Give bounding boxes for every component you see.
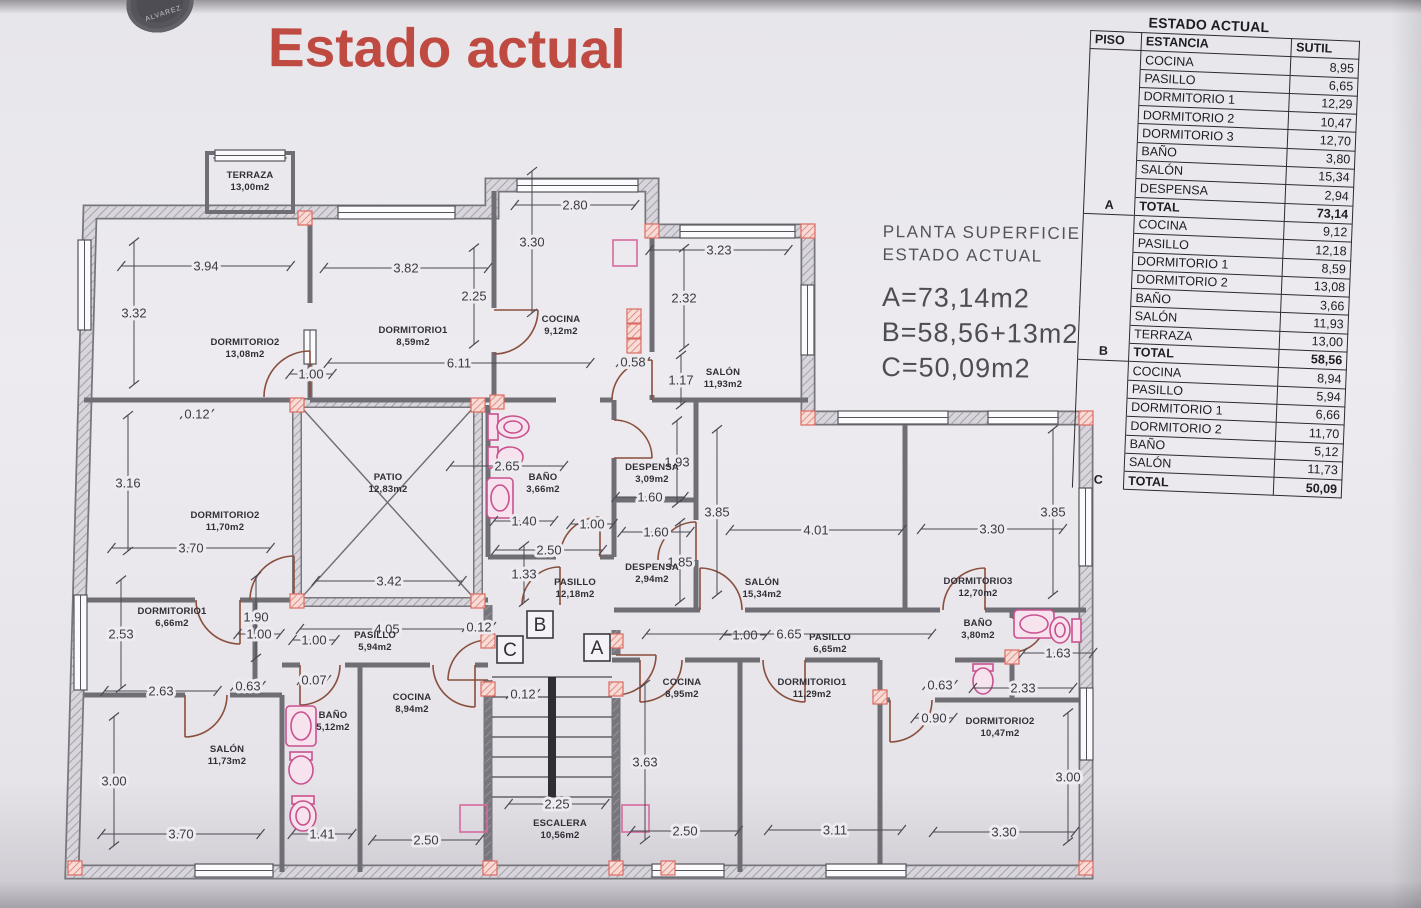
- corner-post: [1079, 861, 1093, 875]
- corner-post: [627, 324, 641, 338]
- area-table-body: COCINA8,95PASILLO6,65DORMITORIO 112,29DO…: [1072, 49, 1358, 499]
- window-symbol: [215, 150, 285, 161]
- dimension: 3.23: [646, 243, 793, 258]
- dimension: 6.65: [642, 627, 936, 642]
- dimension-label: 2.50: [413, 833, 438, 848]
- window-symbol: [988, 411, 1058, 424]
- dimension: 1.00: [567, 517, 618, 532]
- dimension-label: 3.82: [393, 261, 418, 276]
- area-table: ESTADO ACTUAL PISO ESTANCIA SUTIL COCINA…: [1072, 12, 1361, 499]
- dimension-label: 2.65: [494, 459, 519, 474]
- corner-post: [609, 682, 623, 696]
- room-label: DORMITORIO111,29m2: [777, 677, 847, 700]
- dimension: 0.12: [506, 687, 540, 702]
- piso-cell: [1079, 305, 1131, 325]
- dimension-label: 2.33: [1010, 681, 1035, 696]
- dimension-label: 2.32: [671, 291, 696, 306]
- piso-cell: [1075, 396, 1127, 416]
- dimension-label: 3.30: [519, 235, 544, 250]
- dimension: 3.94: [117, 259, 294, 274]
- unit-letter: A: [591, 638, 604, 659]
- window-symbol: [195, 864, 273, 877]
- dimension-label: 2.53: [108, 627, 133, 642]
- dimension-label: 3.00: [101, 774, 126, 789]
- room-label: DESPENSA2,94m2: [625, 562, 679, 585]
- dimension-label: 0.12: [466, 620, 491, 635]
- dimension-label: 3.30: [991, 825, 1016, 840]
- dimension-label: 6.11: [447, 356, 471, 371]
- dimension: 2.50: [368, 833, 484, 848]
- piso-cell: [1077, 360, 1129, 380]
- dimension: 3.32: [121, 238, 146, 389]
- dimension: 0.63: [230, 679, 265, 694]
- dimension-label: 0.12: [184, 407, 209, 422]
- area-a-text: A=73,14m2: [882, 280, 1080, 317]
- dimension-label: 0.07: [301, 673, 326, 688]
- piso-cell: [1078, 323, 1130, 343]
- dimension: 2.53: [108, 576, 133, 693]
- corner-post: [471, 398, 485, 412]
- unit-letter: C: [503, 640, 517, 661]
- area-b-text: B=58,56+13m2: [882, 315, 1080, 352]
- piso-cell: [1089, 49, 1141, 69]
- room-label: DORMITORIO213,08m2: [210, 337, 279, 360]
- dimension: 2.25: [505, 797, 610, 812]
- dimension-label: 0.58: [620, 355, 645, 370]
- unit-letter: B: [534, 615, 547, 636]
- room-label: SALÓN15,34m2: [743, 576, 782, 600]
- piso-cell: [1075, 414, 1127, 434]
- dimension-label: 0.90: [921, 711, 946, 726]
- room-label: BAÑO5,12m2: [316, 710, 349, 733]
- dimension-label: 1.00: [298, 367, 323, 382]
- dimension-label: 1.00: [579, 517, 604, 532]
- corner-post: [661, 861, 675, 875]
- window-symbol: [801, 285, 814, 355]
- piso-cell: [1074, 433, 1126, 453]
- dimension: 1.90: [243, 572, 268, 662]
- dimension: 1.60: [618, 525, 695, 540]
- dimension: 3.85: [704, 425, 729, 599]
- dimension-label: 3.94: [193, 259, 218, 274]
- dimension-label: 3.63: [632, 755, 657, 770]
- piso-cell: [1076, 378, 1128, 398]
- dimension-label: 1.63: [1045, 646, 1070, 661]
- piso-cell: [1089, 67, 1141, 87]
- dimension: 3.82: [320, 261, 492, 276]
- room-label: COCINA9,12m2: [542, 314, 581, 337]
- dimension-label: 0.63: [235, 679, 260, 694]
- window-symbol: [338, 206, 455, 219]
- dimension-label: 3.85: [1040, 505, 1065, 520]
- dimension-label: 2.50: [672, 824, 697, 839]
- dimension-label: 3.70: [178, 541, 203, 556]
- bidet-symbol: [973, 664, 993, 694]
- dimension-label: 3.85: [704, 505, 729, 520]
- dimension: 1.33: [511, 541, 536, 606]
- dimension: 3.11: [764, 823, 906, 838]
- room-label: SALÓN11,73m2: [208, 743, 246, 767]
- sink-symbol: [286, 706, 316, 746]
- piso-cell: [1083, 213, 1135, 233]
- corner-post: [627, 309, 641, 323]
- piso-cell: [1073, 451, 1125, 471]
- dimension-label: 0.12: [510, 687, 535, 702]
- dimension: 2.32: [671, 244, 696, 352]
- dimension: 3.70: [107, 541, 274, 556]
- piso-cell: [1086, 140, 1138, 160]
- window-symbol: [838, 411, 948, 424]
- dimension: 3.30: [929, 825, 1079, 840]
- window-symbol: [517, 179, 638, 192]
- sink-symbol: [487, 478, 513, 518]
- corner-post: [68, 861, 82, 875]
- annotation-line: PLANTA SUPERFICIE: [883, 220, 1081, 245]
- corner-post: [1005, 650, 1019, 664]
- piso-cell: [1080, 286, 1132, 306]
- dimension-label: 1.41: [309, 827, 334, 842]
- room-label: DESPENSA3,09m2: [625, 462, 679, 485]
- window-symbol: [74, 595, 87, 690]
- dimension-label: 2.80: [562, 198, 587, 213]
- piso-cell: [1086, 122, 1138, 142]
- dimension-label: 3.32: [121, 306, 146, 321]
- sink-symbol: [1014, 610, 1054, 638]
- dimension-label: 3.30: [979, 522, 1004, 537]
- piso-cell: [1084, 177, 1136, 197]
- dimension-label: 3.16: [115, 476, 140, 491]
- dimension-label: 1.00: [732, 628, 757, 643]
- dimension-label: 6.65: [776, 627, 801, 642]
- room-label: PASILLO5,94m2: [354, 630, 396, 653]
- dimension-label: 1.17: [668, 373, 693, 388]
- room-label: PASILLO6,65m2: [809, 632, 851, 655]
- dimension: 4.01: [726, 523, 906, 538]
- dimension-label: 3.11: [823, 823, 847, 838]
- corner-post: [801, 411, 815, 425]
- dimension-label: 3.23: [706, 243, 731, 258]
- corner-post: [627, 339, 641, 353]
- window-symbol: [1080, 688, 1093, 760]
- dimension-label: 2.25: [544, 797, 569, 812]
- unit-letter-box: B: [527, 611, 553, 638]
- corner-post: [471, 594, 485, 608]
- piso-cell: [1085, 158, 1137, 178]
- dimension: 0.12: [462, 620, 496, 635]
- dimension: 0.58: [616, 355, 650, 370]
- corner-post: [290, 594, 304, 608]
- room-label: DORMITORIO16,66m2: [137, 606, 207, 629]
- dimension: 6.11: [324, 356, 595, 371]
- dimension-label: 1.60: [643, 525, 668, 540]
- dimension: 2.25: [461, 244, 486, 349]
- dimension-label: 3.70: [168, 827, 193, 842]
- patio-walls: [297, 403, 478, 602]
- piso-cell: C: [1072, 469, 1124, 489]
- annotation-line: ESTADO ACTUAL: [882, 243, 1080, 268]
- dimension-label: 1.90: [243, 610, 268, 625]
- piso-cell: B: [1078, 341, 1130, 361]
- corner-post: [873, 690, 887, 704]
- corner-post: [483, 861, 497, 875]
- room-label: BAÑO3,80m2: [961, 618, 994, 641]
- dimension-label: 3.00: [1055, 770, 1080, 785]
- dimension: 3.63: [632, 680, 657, 844]
- room-label: DORMITORIO211,70m2: [190, 510, 259, 533]
- scanned-floor-plan-page: ALVAREZ Estado actual: [0, 0, 1421, 908]
- room-label: COCINA8,95m2: [663, 677, 702, 700]
- room-label: BAÑO3,66m2: [526, 472, 559, 495]
- room-label: TERRAZA13,00m2: [227, 170, 274, 193]
- dimension: 1.00: [234, 627, 285, 642]
- corner-post: [481, 682, 495, 696]
- dimension-label: 1.60: [637, 490, 662, 505]
- corner-post: [801, 224, 815, 238]
- corner-post: [481, 634, 495, 648]
- piso-cell: [1082, 232, 1134, 252]
- toilet-symbol: [488, 414, 529, 440]
- sutil-cell: 50,09: [1274, 477, 1342, 498]
- bidet-symbol: [289, 752, 313, 784]
- dimension: 2.80: [511, 198, 639, 213]
- corner-post: [609, 861, 623, 875]
- window-symbol: [826, 864, 906, 877]
- dimension-label: 1.00: [301, 633, 326, 648]
- window-symbol: [680, 225, 795, 238]
- dimension: 1.00: [286, 367, 337, 382]
- piso-cell: [1080, 268, 1132, 288]
- dimension: 0.90: [911, 711, 958, 726]
- dimension-label: 3.42: [376, 574, 401, 589]
- room-label: DORMITORIO18,59m2: [378, 325, 448, 348]
- dimension: 3.16: [115, 411, 140, 555]
- piso-cell: A: [1083, 195, 1135, 215]
- dimension-label: 2.50: [536, 543, 561, 558]
- bath-fixtures: [286, 414, 1081, 831]
- toilet-symbol: [1050, 617, 1081, 643]
- dimension: 0.12: [180, 407, 214, 422]
- unit-letter-boxes: BCA: [497, 611, 610, 663]
- dimension-label: 2.63: [148, 684, 173, 699]
- window-symbol: [1079, 488, 1092, 566]
- dimension: 0.63: [922, 678, 957, 693]
- room-label: ESCALERA10,56m2: [533, 818, 587, 841]
- dimension-label: 4.01: [803, 523, 828, 538]
- dimension: 0.07: [297, 673, 331, 688]
- piso-cell: [1081, 250, 1133, 270]
- dimension: 3.00: [1055, 709, 1080, 846]
- unit-letter-box: C: [497, 636, 523, 663]
- dimension: 3.85: [1040, 425, 1065, 599]
- corner-post: [298, 211, 312, 225]
- dimension: 3.70: [97, 827, 264, 842]
- dimension-label: 1.40: [511, 514, 536, 529]
- corner-post: [490, 395, 504, 409]
- piso-cell: [1088, 85, 1140, 105]
- corner-post: [645, 224, 659, 238]
- corner-post: [290, 398, 304, 412]
- unit-letter-box: A: [584, 634, 610, 661]
- dimension: 1.00: [289, 633, 340, 648]
- piso-cell: [1087, 104, 1139, 124]
- room-label: DORMITORIO312,70m2: [943, 576, 1012, 599]
- room-label: DORMITORIO210,47m2: [965, 716, 1034, 739]
- room-label: COCINA8,94m2: [393, 692, 432, 715]
- room-label: PATIO12,83m2: [369, 472, 408, 495]
- col-piso: PISO: [1090, 31, 1142, 51]
- corner-post: [609, 634, 623, 648]
- plan-annotation: PLANTA SUPERFICIE ESTADO ACTUAL A=73,14m…: [881, 220, 1081, 387]
- room-label: SALÓN11,93m2: [704, 366, 742, 390]
- window-symbol: [78, 240, 91, 330]
- dimension: 3.42: [311, 574, 466, 589]
- room-label: PASILLO12,18m2: [554, 577, 596, 600]
- dimension-label: 2.25: [461, 289, 486, 304]
- dimension: 3.30: [917, 522, 1067, 537]
- patio-cross: [302, 408, 473, 597]
- dimension-label: 0.63: [927, 678, 952, 693]
- area-c-text: C=50,09m2: [881, 350, 1079, 387]
- dimension-label: 1.00: [246, 627, 271, 642]
- dimension: 1.00: [720, 628, 771, 643]
- dimension-label: 1.33: [511, 567, 536, 582]
